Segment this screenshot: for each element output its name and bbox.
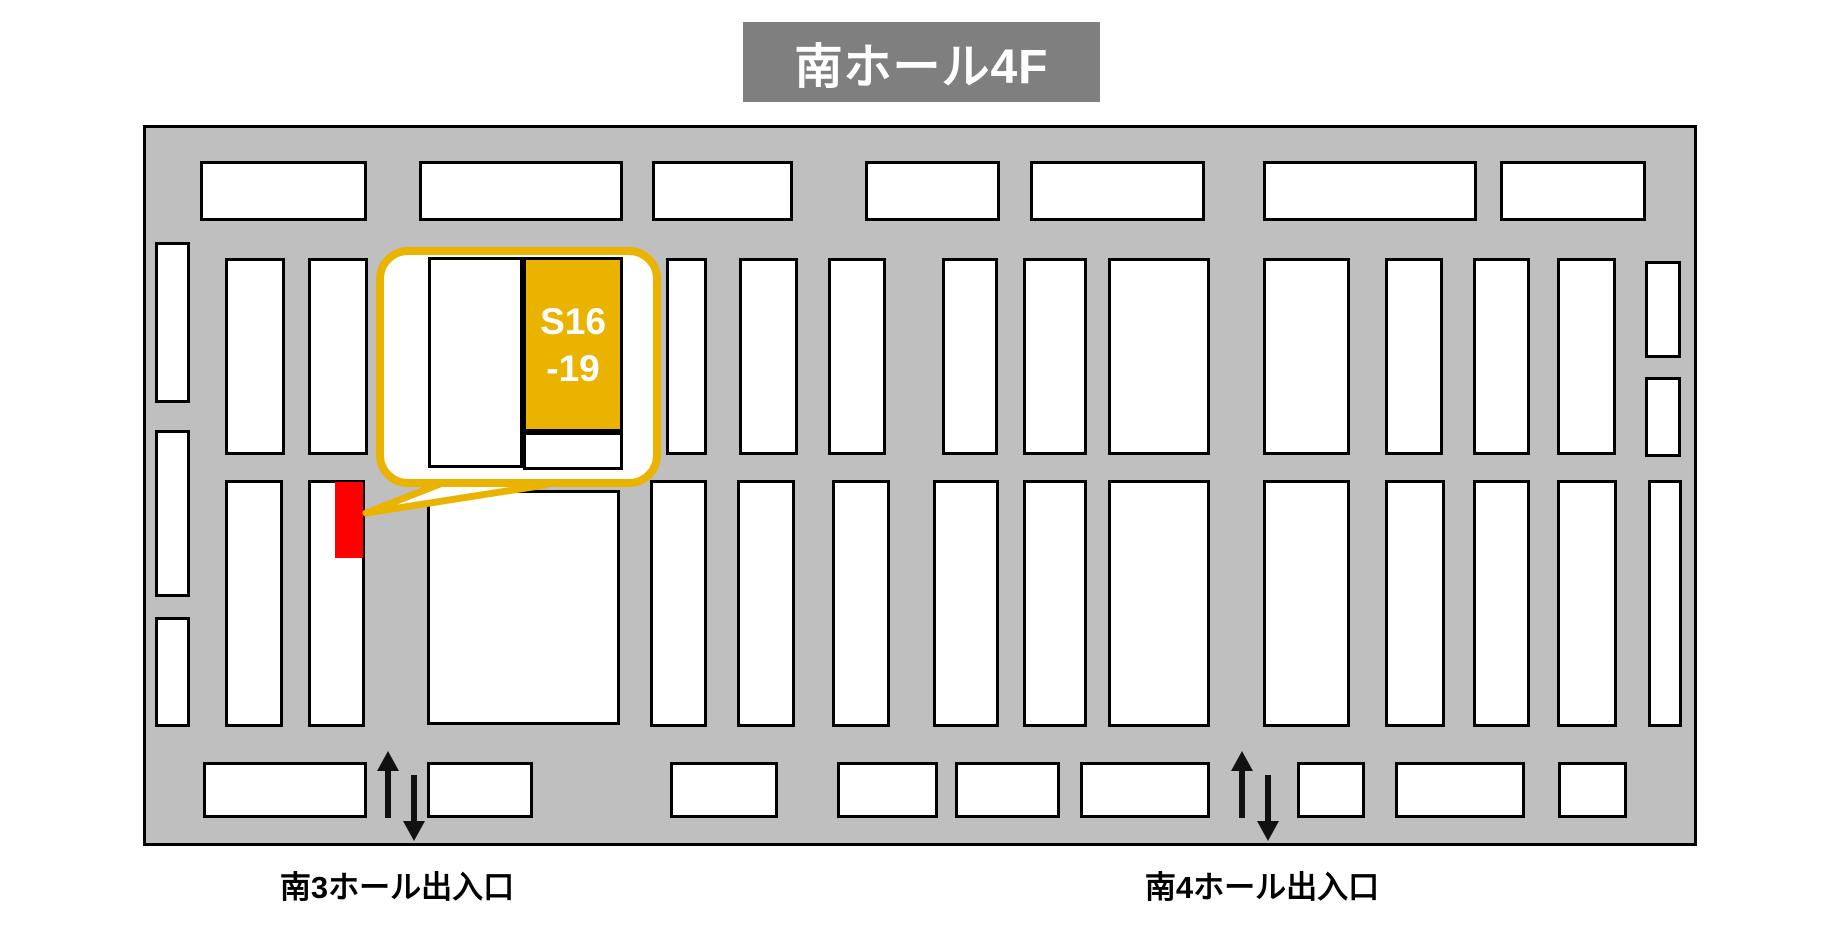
entrance-label-south4: 南4ホール出入口 — [1145, 862, 1379, 907]
booth — [1385, 480, 1445, 727]
booth — [832, 480, 890, 727]
booth — [1500, 161, 1646, 221]
booth — [828, 258, 886, 455]
booth — [652, 161, 793, 221]
booth-s16-19-highlight: S16-19 — [523, 257, 623, 432]
booth — [1023, 258, 1087, 455]
hall-title-banner: 南ホール4F — [743, 22, 1100, 102]
booth — [1473, 258, 1530, 455]
booth — [1108, 480, 1210, 727]
booth — [1385, 258, 1443, 455]
booth — [865, 161, 1000, 221]
booth — [200, 161, 367, 221]
booth — [837, 762, 938, 818]
booth — [1263, 258, 1350, 455]
booth — [942, 258, 998, 455]
booth — [1645, 377, 1681, 457]
booth-label-line2: -19 — [546, 345, 599, 392]
booth — [1030, 161, 1205, 221]
booth — [1108, 258, 1210, 455]
booth — [1080, 762, 1210, 818]
booth — [1263, 161, 1477, 221]
booth — [1473, 480, 1530, 727]
booth-label-line1: S16 — [540, 298, 606, 345]
booth — [203, 762, 367, 818]
arrow-up-icon — [377, 751, 399, 818]
booth — [1558, 762, 1627, 818]
booth — [737, 480, 795, 727]
south3-entrance-arrows — [368, 748, 430, 844]
booth — [155, 242, 190, 403]
booth — [225, 480, 283, 727]
south4-entrance-arrows — [1222, 748, 1284, 844]
booth — [1395, 762, 1525, 818]
hall-title: 南ホール4F — [794, 27, 1048, 97]
booth — [1297, 762, 1365, 818]
booth — [155, 617, 190, 727]
booth — [155, 430, 190, 597]
arrow-up-icon — [1231, 751, 1253, 818]
callout-booth-small — [523, 432, 623, 470]
entrance-label-south3: 南3ホール出入口 — [280, 862, 514, 907]
booth — [739, 258, 798, 455]
booth — [1023, 480, 1087, 727]
booth — [1557, 480, 1617, 727]
arrow-down-icon — [1257, 775, 1279, 841]
arrow-down-icon — [403, 775, 425, 841]
booth — [670, 762, 778, 818]
booth — [1263, 480, 1350, 727]
booth — [1648, 480, 1682, 727]
booth — [955, 762, 1060, 818]
booth — [1557, 258, 1616, 455]
floor-map-page: 南ホール4F S16-19 南3ホール出入口 南4ホール出入口 — [0, 0, 1844, 925]
booth — [419, 161, 623, 221]
booth — [225, 258, 285, 455]
booth — [427, 762, 533, 818]
booth — [933, 480, 999, 727]
booth — [1645, 261, 1681, 358]
callout-booth-white — [428, 257, 523, 468]
